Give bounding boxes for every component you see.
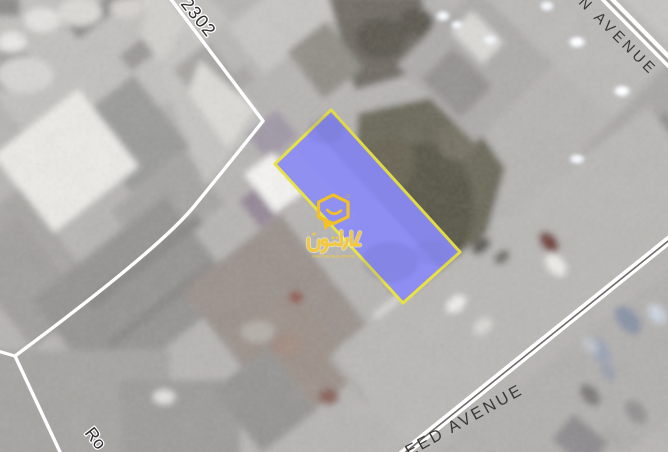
svg-text:CARLTON REAL ESTATE: CARLTON REAL ESTATE — [312, 255, 355, 259]
